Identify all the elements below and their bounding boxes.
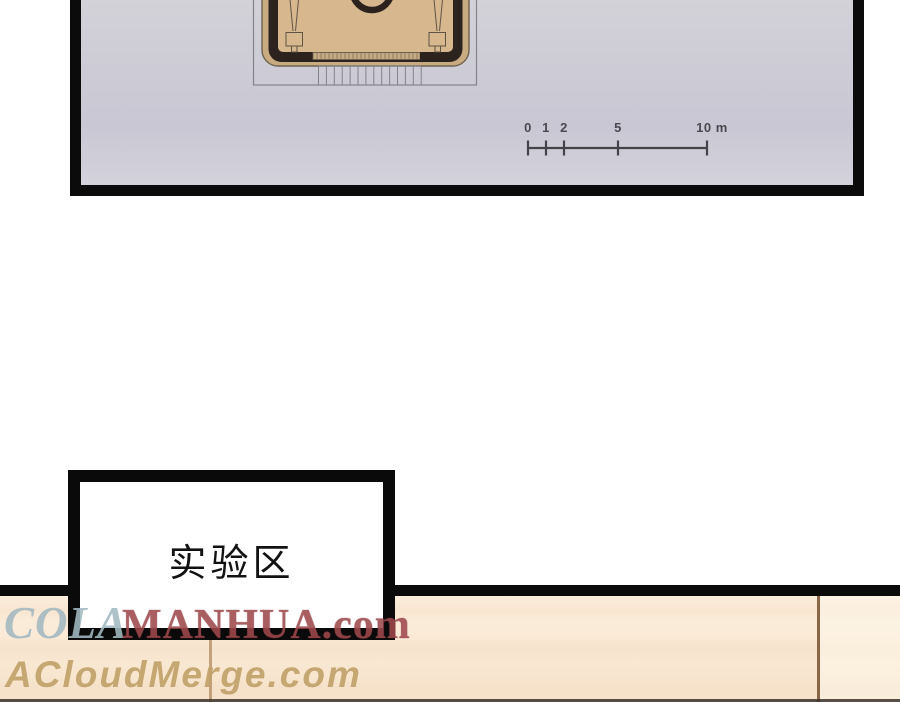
- scale-tick-1: 1: [542, 120, 550, 135]
- scale-tick-5: 5: [614, 120, 622, 135]
- caption-text: 实验区: [168, 532, 294, 587]
- scale-tick-0: 0: [524, 120, 532, 135]
- scale-tick-2: 2: [560, 120, 568, 135]
- site-plan-drawing: [250, 0, 480, 88]
- watermark-colamanhua: COLAMANHUA.com: [4, 601, 411, 646]
- watermark-acloudmerge: ACloudMerge.com: [5, 656, 362, 693]
- watermark-manhua-part: MANHUA.com: [122, 602, 411, 648]
- watermark-cola-part: COLA: [4, 598, 128, 648]
- stairs-hatching: [319, 66, 422, 85]
- scale-bar-line: [520, 118, 725, 160]
- scale-tick-10m: 10 m: [696, 120, 728, 135]
- colonnade-strip: [313, 53, 427, 60]
- floorboard-seam-right: [817, 596, 820, 702]
- scale-bar: 0 1 2 5 10 m: [520, 118, 725, 160]
- floorboard-right-section: [820, 596, 900, 702]
